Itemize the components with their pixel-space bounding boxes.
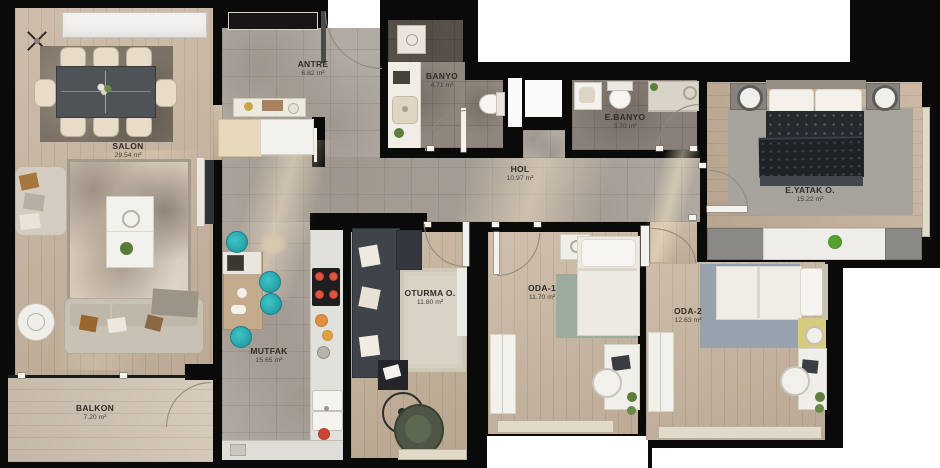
room-name: BALKON <box>76 404 114 414</box>
table-flowers <box>94 80 114 96</box>
room-label-oda1: ODA-1 11.70 m² <box>528 284 556 302</box>
door-jamb <box>534 222 541 227</box>
door-jamb <box>427 146 434 151</box>
wall-salon-balkon-pier <box>185 364 217 380</box>
coffee-table <box>106 196 154 268</box>
oda2-wardrobe <box>648 332 674 412</box>
bar-stool <box>226 231 248 253</box>
vanity-cabinet-item <box>393 71 410 84</box>
dining-chair <box>155 79 177 107</box>
room-area: 15.65 m² <box>250 357 287 365</box>
room-label-banyo: BANYO 4.71 m² <box>426 72 458 90</box>
console-dish <box>288 103 299 114</box>
room-area: 29.54 m² <box>112 152 143 160</box>
armchair-pillow <box>19 213 40 230</box>
oturma-pillow <box>358 286 380 309</box>
dried-plant-decor <box>258 232 288 256</box>
coffee-table-plant <box>120 242 133 255</box>
burner <box>315 272 324 281</box>
oda2-blanket-fold <box>757 266 760 318</box>
oda2-headboard <box>822 264 828 320</box>
faucet <box>324 406 329 411</box>
oda2-desk-chair <box>780 366 810 396</box>
oda1-laptop <box>611 355 631 371</box>
room-name: BANYO <box>426 72 458 82</box>
banyo-toilet-tank <box>496 92 505 116</box>
bar-stool <box>230 326 252 348</box>
entry-closet-outline <box>228 12 318 30</box>
floorplan-canvas: SALON 29.54 m² ANTRE 6.82 m² BANYO 4.71 … <box>0 0 940 468</box>
tv-screen <box>205 160 214 224</box>
door-jamb <box>492 222 499 227</box>
banyo-sink <box>392 96 418 124</box>
room-label-ebanyo: E.BANYO 3.70 m² <box>605 113 646 131</box>
oda1-pillow <box>581 239 636 267</box>
oda1-window <box>497 420 614 433</box>
tv-cabinet <box>197 158 204 226</box>
eyatak-window <box>922 107 930 237</box>
coffee-table-tray <box>122 210 140 228</box>
oda2-plant <box>815 404 824 413</box>
corridor-stub-trim <box>314 128 317 162</box>
shaft-niche-narrow <box>508 78 522 127</box>
red-pot <box>318 428 330 440</box>
eyatak-lamp <box>872 85 898 111</box>
island-plate <box>237 288 247 298</box>
shower-tray <box>397 25 426 54</box>
hol-bump-floor <box>523 130 565 158</box>
room-name: ODA-1 <box>528 284 556 294</box>
food-bowl <box>322 330 333 341</box>
exterior-top <box>478 0 850 62</box>
room-area: 11.70 m² <box>528 294 556 302</box>
oda2-window <box>658 426 822 439</box>
room-name: SALON <box>112 142 143 152</box>
oturma-sofa-chaise <box>396 230 422 270</box>
banyo-plant <box>394 128 404 138</box>
island-platter <box>231 305 246 314</box>
oda1-desk-chair <box>592 368 622 398</box>
armchair-pillow <box>23 193 45 212</box>
oda2-pillow <box>800 268 824 316</box>
exterior-bottom-right <box>652 448 843 468</box>
slider-jamb <box>18 373 25 378</box>
room-area: 4.71 m² <box>426 82 458 90</box>
room-area: 12.63 m² <box>674 317 702 325</box>
island-tray <box>227 255 244 271</box>
balkon-slider-door <box>8 375 187 378</box>
door-jamb <box>689 215 696 220</box>
eyatak-dresser-center <box>763 228 887 260</box>
burner <box>329 272 338 281</box>
eyatak-headboard <box>766 80 866 89</box>
burner <box>315 290 324 299</box>
bar-stool <box>259 271 281 293</box>
shaft-niche-square <box>525 80 562 117</box>
eyatak-dresser-left <box>707 228 765 260</box>
ebanyo-plant <box>650 83 658 91</box>
room-area: 10.97 m² <box>507 175 534 183</box>
sofa-pillow <box>79 315 98 333</box>
eyatak-dresser-right <box>885 228 922 260</box>
room-area: 3.70 m² <box>605 123 646 131</box>
food-bowl <box>315 314 328 327</box>
room-label-oda2: ODA-2 12.63 m² <box>674 307 702 325</box>
room-label-antre: ANTRE 6.82 m² <box>298 60 329 78</box>
bar-stool <box>260 293 282 315</box>
corridor-wardrobe-cream <box>218 119 262 157</box>
exterior-bottom-mid <box>487 436 648 468</box>
room-label-hol: HOL 10.97 m² <box>507 165 534 183</box>
corridor-wardrobe-white <box>260 119 314 155</box>
room-label-oturma: OTURMA O. 11.80 m² <box>404 289 455 307</box>
room-area: 7.20 m² <box>76 414 114 422</box>
burner <box>329 290 338 299</box>
salon-side-table <box>17 303 55 341</box>
door-jamb <box>690 146 697 151</box>
console-gold-bowl <box>244 102 253 111</box>
kitchen-sink <box>312 411 343 431</box>
eyatak-throw <box>759 136 864 178</box>
oturma-window <box>398 449 467 460</box>
oda1-plant <box>627 392 637 402</box>
room-name: MUTFAK <box>250 347 287 357</box>
oda1-plant <box>627 406 636 415</box>
ebanyo-toilet <box>609 88 631 109</box>
dresser-plant <box>828 235 842 249</box>
hol-floor <box>222 158 700 222</box>
ebanyo-sink <box>574 82 602 110</box>
oturma-pillow <box>358 245 380 268</box>
ebanyo-toilet-tank <box>607 81 633 91</box>
room-name: E.BANYO <box>605 113 646 123</box>
door-jamb <box>699 163 706 168</box>
sofa-throw <box>151 288 199 317</box>
room-area: 6.82 m² <box>298 70 329 78</box>
room-label-balkon: BALKON 7.20 m² <box>76 404 114 422</box>
room-label-mutfak: MUTFAK 15.65 m² <box>250 347 287 365</box>
sofa-pillow <box>107 317 127 333</box>
door-jamb <box>656 146 663 151</box>
oturma-pillow <box>359 335 380 357</box>
room-name: ANTRE <box>298 60 329 70</box>
dining-chair <box>34 79 56 107</box>
oda2-door-leaf <box>641 226 649 266</box>
room-name: HOL <box>507 165 534 175</box>
salon-bay-console <box>62 12 207 38</box>
room-label-salon: SALON 29.54 m² <box>112 142 143 160</box>
oda2-round-table <box>805 326 824 345</box>
room-name: E.YATAK O. <box>785 186 835 196</box>
oda2-plant <box>815 392 825 402</box>
room-label-eyatak: E.YATAK O. 15.22 m² <box>785 186 835 204</box>
oda1-blanket-fold <box>578 268 637 271</box>
room-name: OTURMA O. <box>404 289 455 299</box>
room-name: ODA-2 <box>674 307 702 317</box>
exterior-right <box>843 268 940 468</box>
oda1-wardrobe <box>490 334 516 414</box>
counter-item <box>230 444 246 456</box>
kettle <box>317 346 330 359</box>
oturma-tv-unit <box>457 268 467 336</box>
room-area: 15.22 m² <box>785 196 835 204</box>
console-box <box>262 100 283 111</box>
eyatak-lamp <box>737 85 763 111</box>
slider-jamb <box>120 373 127 378</box>
room-area: 11.80 m² <box>404 299 455 307</box>
